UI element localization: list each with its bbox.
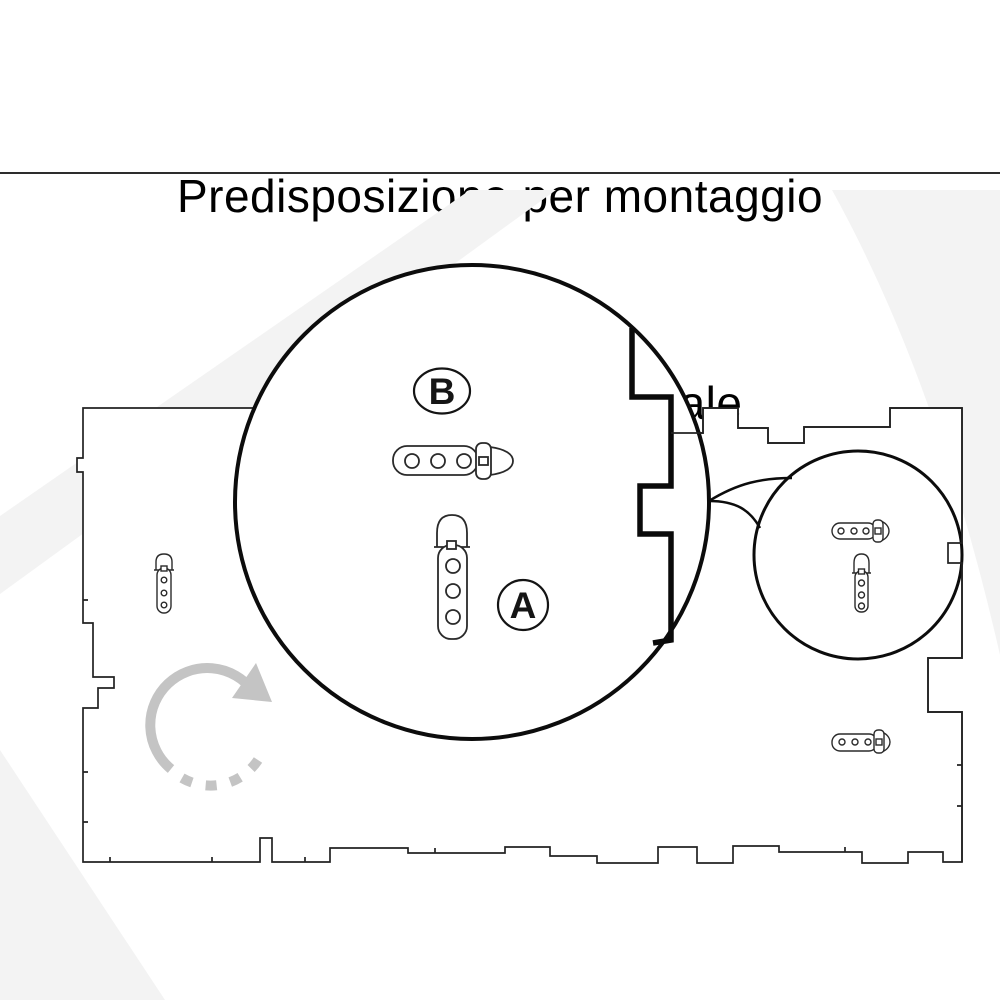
zoomed-strap-vertical-a <box>434 515 470 639</box>
callout-a: A <box>498 580 548 630</box>
small-zoom-strap-vertical <box>852 554 871 612</box>
small-zoom-strap-horizontal <box>832 520 889 542</box>
callout-b-label: B <box>429 371 456 412</box>
instruction-sheet: Predisposizione per montaggio Verticale … <box>0 0 1000 1000</box>
panel-strap-horizontal-right <box>832 730 890 753</box>
assembly-diagram: B A <box>0 0 1000 1000</box>
panel-strap-vertical-left <box>154 554 174 613</box>
zoomed-strap-horizontal-b <box>393 443 513 479</box>
callout-a-label: A <box>510 585 537 626</box>
callout-b: B <box>414 369 470 414</box>
